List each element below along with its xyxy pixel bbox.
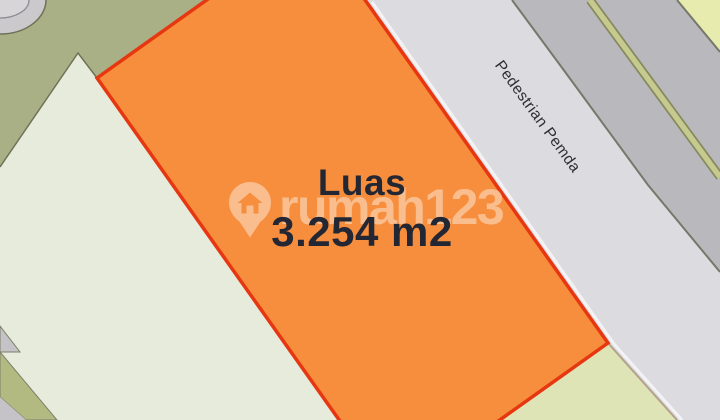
plot-label-area: 3.254 m2 — [238, 208, 486, 256]
plot-label: Luas 3.254 m2 — [238, 162, 486, 256]
plot-label-title: Luas — [238, 162, 486, 205]
site-plan-map: rumah123 Luas 3.254 m2 Pedestrian Pemda — [0, 0, 720, 420]
